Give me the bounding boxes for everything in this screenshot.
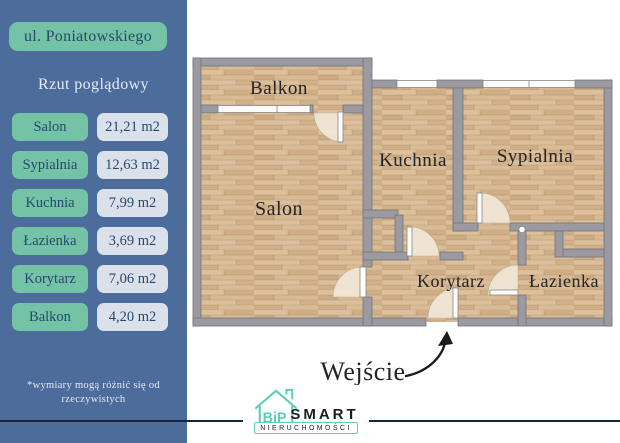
bedroom-door-leaf <box>477 193 482 223</box>
kitchen-window <box>397 81 437 88</box>
label-lazienka: Łazienka <box>529 271 599 291</box>
room-row: Kuchnia 7,99 m2 <box>0 189 187 217</box>
label-sypialnia: Sypialnia <box>497 146 573 167</box>
room-row: Salon 21,21 m2 <box>0 113 187 141</box>
label-balkon: Balkon <box>250 78 308 99</box>
room-area-pill: 21,21 m2 <box>97 113 168 141</box>
room-area-pill: 7,06 m2 <box>97 265 168 293</box>
room-name-pill: Korytarz <box>12 265 88 293</box>
label-salon: Salon <box>255 198 303 220</box>
entrance-annotation: Wejście <box>320 331 453 386</box>
room-area-pill: 4,20 m2 <box>97 303 168 331</box>
room-area-list: Salon 21,21 m2 Sypialnia 12,63 m2 Kuchni… <box>0 113 187 331</box>
room-area-pill: 12,63 m2 <box>97 151 168 179</box>
room-name-pill: Kuchnia <box>12 189 88 217</box>
brand-logo: BiP SMART NIERUCHOMOŚCI <box>243 385 369 436</box>
door-hinge-dot <box>519 226 525 232</box>
room-row: Sypialnia 12,63 m2 <box>0 151 187 179</box>
room-name-pill: Balkon <box>12 303 88 331</box>
balcony-window <box>218 106 310 113</box>
room-row: Balkon 4,20 m2 <box>0 303 187 331</box>
room-area-pill: 3,69 m2 <box>97 227 168 255</box>
sidebar: ul. Poniatowskiego Rzut poglądowy Salon … <box>0 0 187 443</box>
living-room-door-leaf <box>360 267 366 297</box>
entrance-arrowhead <box>438 331 453 346</box>
entrance-door-leaf <box>453 288 458 318</box>
room-area-pill: 7,99 m2 <box>97 189 168 217</box>
disclaimer-line-1: *wymiary mogą różnić się od <box>0 379 187 393</box>
floor-plan: Balkon Salon Kuchnia Sypialnia Korytarz … <box>190 50 620 400</box>
disclaimer-note: *wymiary mogą różnić się od rzeczywistyc… <box>0 379 187 406</box>
room-name-pill: Łazienka <box>12 227 88 255</box>
floor-plan-card: ul. Poniatowskiego Rzut poglądowy Salon … <box>0 0 620 443</box>
room-row: Korytarz 7,06 m2 <box>0 265 187 293</box>
entrance-label: Wejście <box>320 357 405 386</box>
label-kuchnia: Kuchnia <box>379 150 447 171</box>
address-badge: ul. Poniatowskiego <box>9 22 167 51</box>
plan-subtitle: Rzut poglądowy <box>0 76 187 94</box>
room-name-pill: Salon <box>12 113 88 141</box>
room-row: Łazienka 3,69 m2 <box>0 227 187 255</box>
bathroom-door-leaf <box>490 290 518 295</box>
label-korytarz: Korytarz <box>417 271 485 291</box>
entrance-arrow <box>406 343 445 376</box>
kitchen-door-leaf <box>407 227 412 256</box>
brand-name: SMART <box>290 406 358 423</box>
balcony-door-leaf <box>338 112 343 142</box>
room-name-pill: Sypialnia <box>12 151 88 179</box>
disclaimer-line-2: rzeczywistych <box>0 393 187 407</box>
brand-subname: NIERUCHOMOŚCI <box>254 422 357 434</box>
